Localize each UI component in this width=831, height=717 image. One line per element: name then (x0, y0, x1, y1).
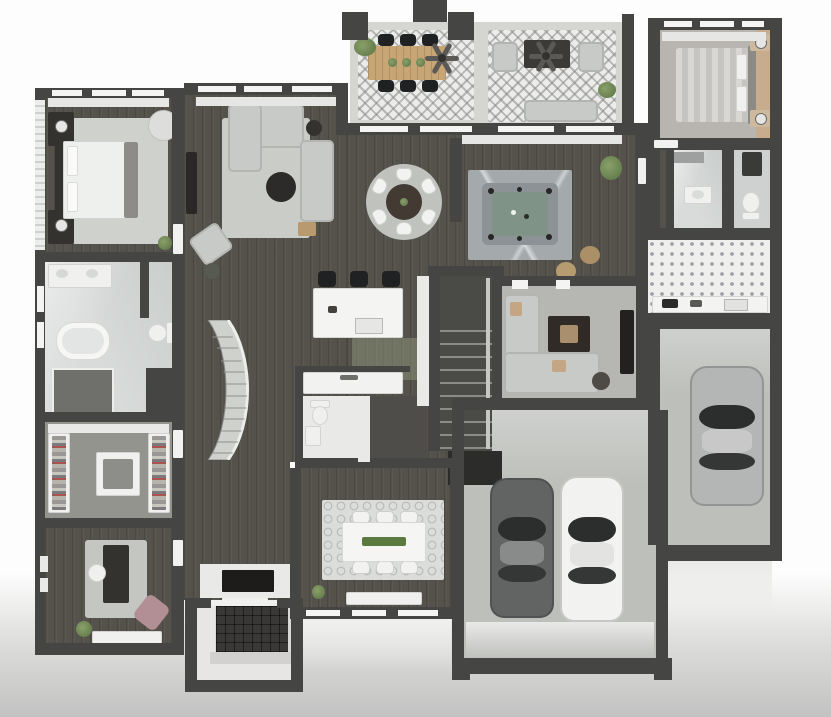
front-walkway (303, 618, 451, 670)
wall-porch-top-l (185, 598, 211, 608)
billiards-window-sill (462, 135, 622, 144)
patio-lounge-chair (578, 42, 604, 72)
window (566, 126, 614, 132)
rear-window (498, 565, 547, 582)
laundry-sink (724, 299, 748, 311)
floor-plan-canvas (0, 0, 831, 717)
bedroom2-window-sill (662, 32, 766, 41)
washer-controls (662, 299, 678, 308)
bath-mirror-cabinet (674, 152, 704, 163)
wall-powder-bottom (295, 458, 460, 468)
sectional-sofa-right (300, 140, 334, 222)
sideboard (346, 592, 422, 605)
bath-window (37, 286, 44, 312)
wall-family-left (492, 276, 502, 410)
eight-ball (524, 214, 529, 219)
windshield (568, 517, 617, 542)
window (664, 21, 692, 27)
bed-foot-throw (124, 142, 138, 218)
window (742, 21, 764, 27)
hanging-clothes-right (152, 436, 166, 510)
car-roof (702, 429, 752, 453)
table-lamp (55, 120, 68, 133)
island-decor (328, 306, 337, 313)
door-office (173, 540, 183, 566)
patio-chair (400, 34, 416, 46)
tall-cabinets (417, 276, 429, 406)
office-desk (103, 545, 129, 603)
nook-chair (396, 168, 412, 181)
table-lamp (55, 219, 68, 232)
wall-porch-left (185, 598, 197, 692)
family-door-frame (556, 280, 570, 289)
table-plant (402, 58, 411, 67)
bath-partition-wall (140, 258, 149, 318)
pool-pocket (546, 234, 552, 240)
window (132, 90, 164, 96)
window (420, 126, 472, 132)
patio-planter (598, 82, 616, 98)
desk-chair (88, 564, 106, 582)
door-billiards-hall (638, 158, 646, 184)
ceiling-fan (526, 36, 566, 76)
ottoman (204, 263, 220, 279)
wall-closet-office (45, 518, 172, 528)
car-roof (570, 542, 614, 567)
pool-table-felt (492, 192, 548, 236)
office-plant (76, 621, 92, 637)
wall-porch-top-r (277, 598, 303, 608)
bed2-pillow (736, 54, 747, 80)
window (92, 90, 126, 96)
window (244, 86, 282, 92)
wall-laundry-bottom (648, 313, 770, 329)
billiards-plant (600, 156, 622, 180)
window (360, 126, 408, 132)
dining-chair (376, 560, 394, 574)
bed-pillow (67, 182, 78, 212)
wall-bath-closet (45, 412, 172, 422)
wall-stair-left (428, 266, 440, 451)
powder-faucet (340, 375, 358, 380)
stair-railing (486, 278, 490, 449)
garage-post (654, 658, 672, 680)
patio-sofa (524, 100, 598, 122)
wall-garage-bottom (452, 658, 672, 674)
bar-stool (382, 271, 400, 287)
wall-bed-bath (45, 252, 172, 262)
vanity-sink (86, 269, 98, 278)
window (498, 126, 554, 132)
family-door-frame (512, 280, 528, 289)
coffee-table-tray (560, 325, 578, 343)
windshield (699, 405, 755, 429)
window (398, 610, 438, 616)
tv-console (620, 310, 634, 374)
door-closet (173, 430, 183, 458)
pool-pocket (488, 234, 494, 240)
car-silver (690, 366, 764, 506)
island-sink (355, 318, 383, 334)
front-door (222, 598, 268, 606)
curved-staircase (194, 320, 260, 460)
hanging-clothes-left (52, 436, 66, 510)
bed2-pillow (736, 86, 747, 112)
wall-pool-right (636, 135, 648, 250)
patio-lounge-chair (492, 42, 518, 72)
wall-powder-top (295, 366, 410, 372)
side-table (306, 120, 322, 136)
dining-runner (362, 537, 406, 546)
fireplace-firebox (222, 570, 274, 592)
wall-rw-right (770, 18, 782, 363)
siding-exterior (35, 100, 45, 250)
chimney-cap (413, 0, 447, 22)
walk-in-shower (52, 368, 114, 418)
wall-sgarage-bottom (660, 545, 782, 561)
wall-bath-bottom (648, 228, 782, 240)
stair-treads (440, 330, 492, 451)
patio-chair (400, 80, 416, 92)
window (700, 21, 734, 27)
wall-nook-pool (450, 138, 462, 222)
media-console (186, 152, 197, 214)
wall-porch-bottom (185, 680, 303, 692)
car-white (560, 476, 624, 622)
wall-sgarage-right (770, 329, 782, 561)
garage-apron (466, 622, 654, 660)
wall-rw-left (648, 18, 660, 240)
cue-ball (511, 210, 516, 215)
basket (298, 222, 316, 236)
windshield (498, 517, 547, 541)
patio-chair (378, 80, 394, 92)
car-roof (500, 541, 544, 565)
family-side-table (592, 372, 610, 390)
tub-basin (62, 328, 104, 354)
rear-window (568, 567, 617, 585)
bar-stool (318, 271, 336, 287)
porch-brick-inlay (216, 606, 288, 652)
window (306, 610, 340, 616)
guest-toilet-tank (742, 212, 760, 220)
wall-bath-mid (722, 150, 734, 232)
toilet-bowl (148, 324, 167, 342)
window (292, 86, 332, 92)
nook-chair (396, 222, 412, 235)
pool-pocket (517, 187, 522, 192)
bed2-lamp (755, 113, 767, 125)
round-coffee-table (266, 172, 296, 202)
patio-chair (378, 34, 394, 46)
guest-vanity-sink (692, 190, 704, 199)
patio-column (448, 12, 474, 40)
wall-left-wing-bottom (35, 643, 180, 655)
linen-niche (146, 368, 172, 414)
sectional-sofa-chaise (228, 104, 262, 172)
office-wall-art (40, 556, 48, 572)
closet-shelf-top (48, 424, 169, 433)
wall-hall-bath (666, 148, 674, 238)
sofa-pillow (510, 302, 522, 316)
patio-planter (354, 38, 376, 56)
patio-chair (422, 80, 438, 92)
wall-family-bottom (452, 398, 652, 410)
vanity-sink (56, 269, 68, 278)
closet-island-top (103, 459, 133, 489)
dining-chair (400, 560, 418, 574)
powder-small-vanity (305, 426, 321, 446)
wall-left-wing-right (172, 88, 184, 655)
rattan-pouf (580, 246, 600, 264)
bed-pillow (67, 146, 78, 176)
pool-pocket (517, 236, 522, 241)
single-garage-driveway (668, 561, 772, 625)
dining-plant (312, 585, 325, 599)
wall-powder-left (295, 366, 303, 466)
porch-step-lower (197, 664, 291, 681)
powder-divider-wall (358, 396, 370, 462)
wall-dining-left (290, 468, 300, 618)
powder-toilet-bowl (312, 406, 328, 425)
shower-fixtures (742, 152, 762, 176)
office-wall-art (40, 578, 48, 592)
window (198, 86, 236, 92)
rear-window (699, 453, 755, 470)
wall-sgarage-left (648, 329, 660, 545)
window (352, 610, 386, 616)
nook-centerpiece (400, 198, 408, 206)
table-plant (388, 58, 397, 67)
wall-dining-right (450, 468, 464, 618)
wall-stair-top (428, 266, 504, 276)
living-window-sill (196, 97, 336, 106)
ceiling-fan (422, 38, 462, 78)
door-bedroom2 (654, 140, 678, 148)
patio-column (342, 12, 368, 40)
bath-window (37, 322, 44, 348)
wall-family-laundry (636, 240, 648, 410)
pool-pocket (546, 188, 552, 194)
dining-chair (352, 560, 370, 574)
sofa-pillow (552, 360, 566, 372)
car-dark-gray (490, 478, 554, 618)
garage-post (452, 658, 470, 680)
guest-toilet-bowl (742, 192, 760, 213)
dryer-controls (690, 300, 702, 307)
bar-stool (350, 271, 368, 287)
wall-porch-right (291, 598, 303, 692)
pool-pocket (488, 188, 494, 194)
bedroom-plant (158, 236, 172, 250)
door-master (173, 224, 183, 254)
master-window-sill (48, 98, 169, 107)
bed-headboard (55, 140, 63, 220)
wall-patio-right (622, 14, 634, 135)
family-sectional-bottom (504, 352, 600, 394)
window (52, 90, 82, 96)
